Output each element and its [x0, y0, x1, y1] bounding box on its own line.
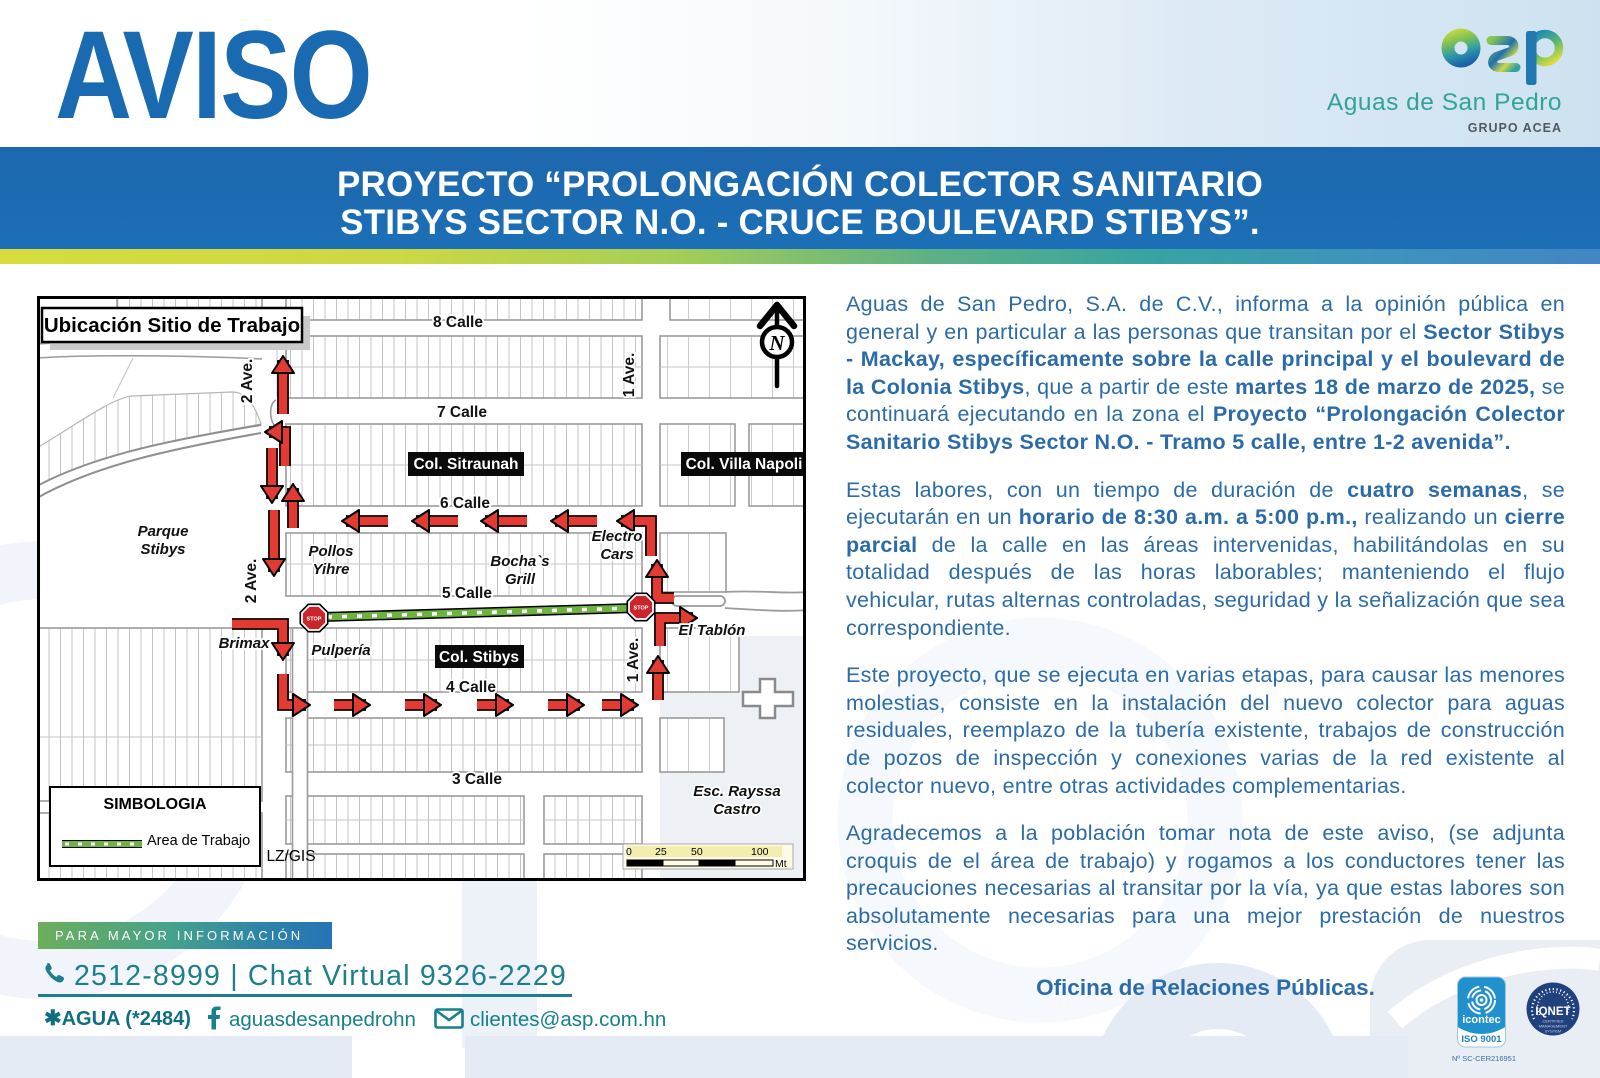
svg-text:Col. Villa Napoli: Col. Villa Napoli [686, 456, 803, 473]
svg-text:LZ/GIS: LZ/GIS [266, 848, 315, 865]
svg-text:Electro: Electro [592, 528, 643, 545]
svg-text:Col. Sitraunah: Col. Sitraunah [413, 456, 518, 473]
svg-text:7 Calle: 7 Calle [437, 404, 487, 421]
svg-text:Yihre: Yihre [313, 561, 350, 578]
svg-text:8 Calle: 8 Calle [433, 314, 483, 331]
svg-text:Castro: Castro [713, 801, 761, 818]
svg-text:STOP: STOP [634, 606, 649, 612]
svg-text:Brimax: Brimax [219, 635, 271, 652]
svg-text:Area de Trabajo: Area de Trabajo [147, 833, 250, 849]
svg-text:IQNET: IQNET [1535, 1006, 1570, 1018]
svg-text:3 Calle: 3 Calle [452, 771, 502, 788]
svg-text:50: 50 [691, 846, 703, 858]
svg-text:Grill: Grill [505, 571, 536, 588]
svg-text:Cars: Cars [600, 546, 633, 563]
svg-text:Aguas de San Pedro: Aguas de San Pedro [1327, 89, 1562, 116]
svg-text:1 Ave.: 1 Ave. [625, 638, 642, 683]
svg-text:Pollos: Pollos [308, 543, 353, 560]
svg-text:Nº SC-CER216951: Nº SC-CER216951 [1452, 1054, 1516, 1063]
svg-text:SYSTEM: SYSTEM [1545, 1029, 1561, 1034]
svg-text:25: 25 [655, 846, 667, 858]
svg-text:Bocha`s: Bocha`s [490, 553, 549, 570]
svg-text:SIMBOLOGIA: SIMBOLOGIA [103, 796, 207, 813]
svg-text:2 Ave.: 2 Ave. [243, 559, 260, 604]
svg-text:1 Ave.: 1 Ave. [621, 353, 638, 398]
svg-text:icontec: icontec [1462, 1014, 1501, 1026]
svg-text:5 Calle: 5 Calle [442, 585, 492, 602]
svg-text:2 Ave.: 2 Ave. [239, 359, 256, 404]
svg-text:Col. Stibys: Col. Stibys [439, 649, 519, 666]
svg-text:Stibys: Stibys [140, 541, 185, 558]
svg-text:GRUPO ACEA: GRUPO ACEA [1468, 121, 1562, 135]
svg-text:STOP: STOP [307, 617, 322, 623]
svg-text:ISO 9001: ISO 9001 [1461, 1034, 1502, 1045]
svg-text:4 Calle: 4 Calle [446, 679, 496, 696]
svg-text:Ubicación Sitio de Trabajo: Ubicación Sitio de Trabajo [44, 314, 300, 337]
svg-text:100: 100 [751, 846, 769, 858]
svg-text:Parque: Parque [138, 523, 189, 540]
svg-text:Esc. Rayssa: Esc. Rayssa [693, 783, 781, 800]
svg-text:N: N [768, 331, 785, 355]
svg-text:Mt: Mt [775, 858, 787, 870]
svg-text:0: 0 [626, 846, 632, 858]
svg-text:Pulpería: Pulpería [311, 642, 370, 659]
svg-text:El Tablón: El Tablón [679, 622, 746, 639]
svg-text:6 Calle: 6 Calle [440, 495, 490, 512]
